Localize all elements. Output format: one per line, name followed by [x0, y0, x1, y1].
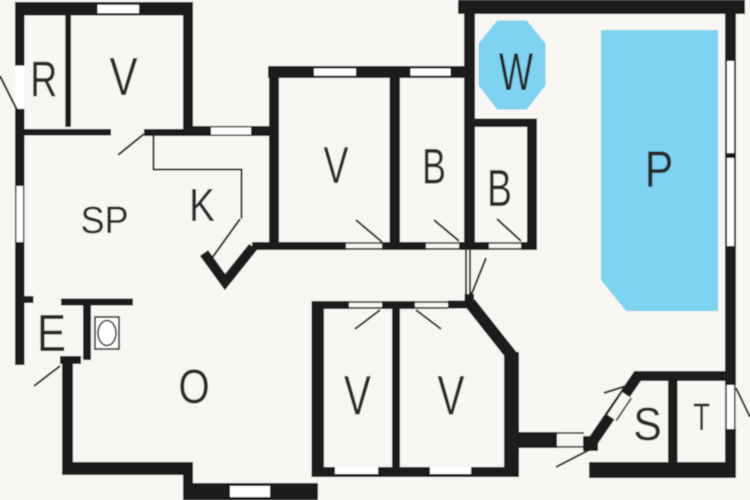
svg-text:R: R — [30, 52, 57, 107]
svg-text:P: P — [645, 140, 674, 197]
svg-text:W: W — [499, 42, 533, 102]
svg-text:S: S — [633, 400, 662, 451]
svg-text:O: O — [178, 361, 209, 414]
svg-text:T: T — [693, 397, 710, 439]
svg-text:K: K — [189, 180, 215, 231]
svg-text:B: B — [487, 159, 512, 218]
svg-text:V: V — [438, 365, 465, 427]
svg-text:V: V — [324, 136, 350, 195]
svg-text:E: E — [37, 306, 66, 363]
svg-text:V: V — [109, 47, 138, 107]
svg-text:V: V — [344, 365, 371, 427]
svg-text:SP: SP — [80, 198, 128, 241]
svg-text:B: B — [422, 140, 446, 195]
